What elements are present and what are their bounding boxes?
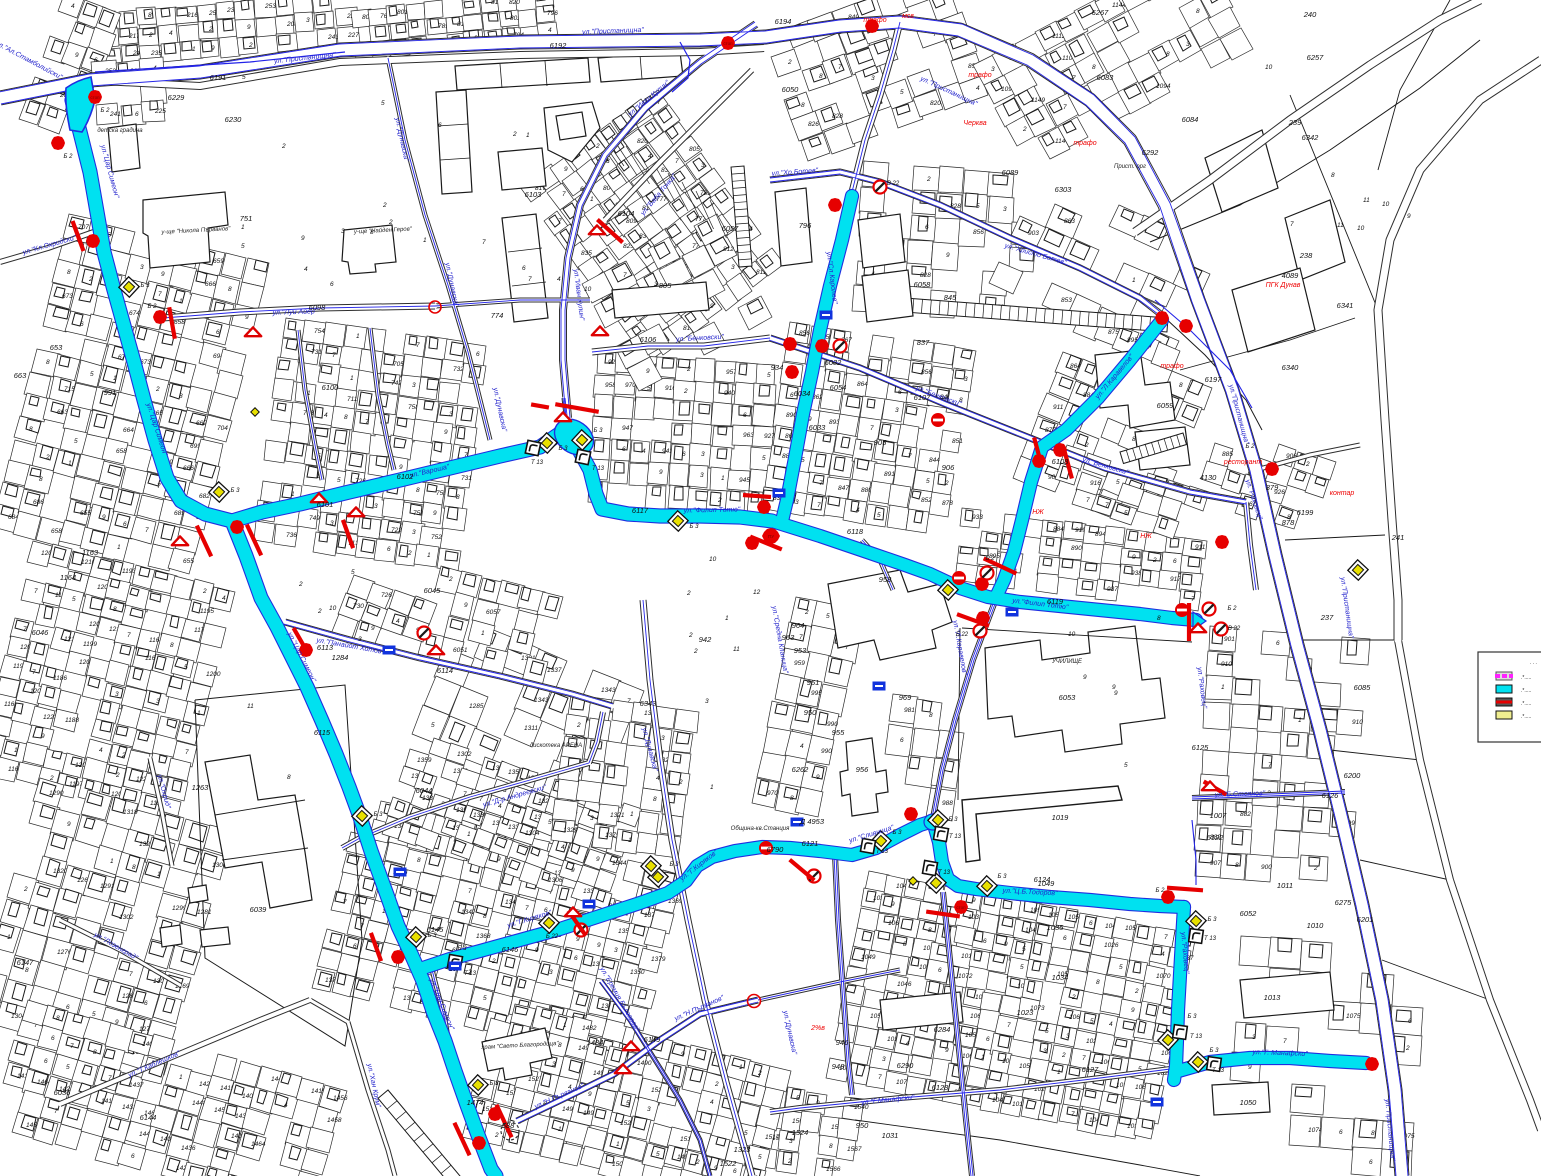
- svg-text:8: 8: [1196, 8, 1200, 15]
- svg-text:6: 6: [938, 967, 942, 974]
- svg-text:1: 1: [1132, 277, 1136, 284]
- svg-text:5: 5: [184, 664, 188, 671]
- svg-text:Б 3: Б 3: [1210, 1048, 1220, 1054]
- svg-text:947: 947: [622, 425, 633, 432]
- svg-text:6100: 6100: [322, 383, 340, 392]
- svg-text:детска градина: детска градина: [97, 128, 143, 134]
- svg-text:2: 2: [1152, 557, 1157, 564]
- svg-text:7: 7: [127, 632, 131, 639]
- svg-text:6149: 6149: [644, 1035, 662, 1044]
- svg-text:879: 879: [1266, 483, 1279, 492]
- svg-text:2: 2: [298, 581, 303, 588]
- svg-text:5: 5: [1090, 1018, 1094, 1025]
- svg-text:Б 22: Б 22: [546, 934, 559, 940]
- svg-text:5: 5: [976, 203, 980, 210]
- svg-text:2: 2: [1022, 126, 1027, 133]
- svg-text:1: 1: [1221, 684, 1225, 691]
- svg-text:4: 4: [99, 747, 103, 754]
- svg-text:1318: 1318: [123, 809, 138, 816]
- svg-text:240: 240: [1303, 10, 1317, 19]
- svg-text:2: 2: [787, 59, 792, 66]
- svg-text:6102: 6102: [397, 472, 415, 481]
- svg-text:9: 9: [1083, 674, 1087, 681]
- svg-text:7: 7: [1283, 1038, 1287, 1045]
- svg-text:10: 10: [709, 556, 717, 563]
- svg-text:11: 11: [733, 646, 740, 653]
- svg-text:8: 8: [801, 102, 805, 109]
- svg-text:9: 9: [433, 510, 437, 517]
- svg-text:6: 6: [986, 1036, 990, 1043]
- svg-text:5: 5: [431, 722, 435, 729]
- svg-text:905: 905: [874, 438, 887, 447]
- svg-text:847: 847: [838, 485, 849, 492]
- svg-text:752: 752: [431, 534, 442, 541]
- svg-text:8: 8: [456, 494, 460, 501]
- svg-text:1379: 1379: [651, 956, 666, 963]
- svg-text:1474: 1474: [467, 1098, 484, 1107]
- svg-text:6267: 6267: [1092, 8, 1110, 17]
- svg-text:9: 9: [371, 625, 375, 632]
- svg-text:7: 7: [1268, 762, 1272, 769]
- svg-text:2: 2: [1313, 865, 1318, 872]
- svg-text:844: 844: [929, 457, 940, 464]
- svg-text:2: 2: [757, 1070, 762, 1077]
- svg-text:1464: 1464: [251, 1141, 266, 1148]
- svg-text:8: 8: [67, 269, 71, 276]
- svg-text:7: 7: [54, 1108, 58, 1115]
- svg-text:820: 820: [509, 0, 520, 6]
- svg-text:1200: 1200: [206, 671, 221, 678]
- svg-text:5: 5: [900, 89, 904, 96]
- svg-text:964: 964: [792, 621, 805, 630]
- svg-text:11: 11: [1337, 222, 1344, 229]
- svg-text:6257: 6257: [1307, 53, 1325, 62]
- svg-text:5: 5: [926, 478, 930, 485]
- svg-text:1199: 1199: [83, 641, 97, 648]
- svg-text:6: 6: [353, 943, 357, 950]
- svg-text:Т 13: Т 13: [949, 834, 962, 840]
- svg-text:754: 754: [314, 328, 325, 335]
- svg-text:6104: 6104: [618, 209, 635, 218]
- svg-text:6: 6: [733, 1168, 737, 1175]
- svg-text:7: 7: [1086, 497, 1090, 504]
- svg-text:5: 5: [762, 455, 766, 462]
- svg-text:878: 878: [942, 500, 953, 507]
- svg-text:5: 5: [1020, 964, 1024, 971]
- svg-text:8: 8: [148, 12, 152, 19]
- svg-text:864: 864: [857, 381, 868, 388]
- svg-text:934: 934: [771, 363, 784, 372]
- svg-text:6108: 6108: [1052, 457, 1070, 466]
- svg-text:ул."Филип Тотю": ул."Филип Тотю": [683, 506, 741, 514]
- svg-text:774: 774: [491, 311, 504, 320]
- svg-text:4: 4: [1109, 1021, 1113, 1028]
- svg-text:Б 2: Б 2: [101, 108, 111, 114]
- svg-text:6058: 6058: [914, 280, 932, 289]
- svg-text:7: 7: [1071, 1111, 1075, 1118]
- svg-text:1: 1: [7, 934, 11, 941]
- svg-text:9: 9: [571, 867, 575, 874]
- svg-text:Б 2: Б 2: [64, 154, 74, 160]
- svg-text:5: 5: [1124, 510, 1128, 517]
- svg-text:Б 3: Б 3: [1188, 1014, 1198, 1020]
- svg-text:707: 707: [78, 224, 89, 231]
- svg-text:655: 655: [80, 510, 91, 517]
- svg-text:1: 1: [1057, 1069, 1061, 1076]
- svg-text:878: 878: [1282, 518, 1295, 527]
- svg-text:5: 5: [1119, 964, 1123, 971]
- svg-text:906: 906: [942, 463, 955, 472]
- svg-text:1007: 1007: [1210, 811, 1228, 820]
- svg-text:9: 9: [75, 52, 79, 59]
- svg-text:856: 856: [921, 369, 932, 376]
- svg-text:6199: 6199: [1297, 508, 1315, 517]
- svg-text:910: 910: [1352, 719, 1363, 726]
- svg-text:2: 2: [944, 480, 949, 487]
- svg-text:6051: 6051: [453, 647, 468, 654]
- svg-text:5: 5: [656, 1151, 660, 1158]
- svg-text:796: 796: [799, 221, 812, 230]
- svg-text:Д 4953: Д 4953: [799, 817, 825, 826]
- svg-text:1484: 1484: [587, 1038, 604, 1047]
- svg-text:9: 9: [597, 942, 601, 949]
- svg-text:682: 682: [199, 493, 210, 500]
- svg-text:8: 8: [483, 913, 487, 920]
- svg-text:1: 1: [467, 831, 471, 838]
- svg-text:9: 9: [972, 897, 976, 904]
- svg-text:9: 9: [1132, 554, 1136, 561]
- svg-text:8: 8: [179, 393, 183, 400]
- svg-text:6052: 6052: [1240, 909, 1258, 918]
- svg-text:10: 10: [329, 605, 337, 612]
- svg-text:3: 3: [789, 1138, 793, 1145]
- svg-text:3: 3: [358, 636, 362, 643]
- svg-text:917: 917: [1170, 576, 1181, 583]
- svg-text:5: 5: [626, 1100, 630, 1107]
- svg-text:1: 1: [725, 615, 729, 622]
- svg-text:7: 7: [343, 899, 347, 906]
- svg-text:1186: 1186: [53, 675, 67, 682]
- svg-text:7: 7: [525, 905, 529, 912]
- svg-text:контар: контар: [1330, 490, 1355, 497]
- svg-text:3: 3: [1003, 206, 1007, 213]
- svg-text:1019: 1019: [1052, 813, 1070, 822]
- svg-text:7: 7: [799, 634, 803, 641]
- svg-text:9: 9: [816, 774, 820, 781]
- svg-text:2: 2: [382, 202, 387, 209]
- svg-text:трафо: трафо: [863, 17, 886, 24]
- svg-text:5: 5: [92, 1011, 96, 1018]
- svg-text:1: 1: [630, 811, 634, 818]
- svg-text:726: 726: [381, 592, 392, 599]
- svg-text:8: 8: [1166, 51, 1170, 58]
- svg-text:ПГК Дунав: ПГК Дунав: [1266, 282, 1301, 289]
- svg-text:3: 3: [871, 75, 875, 82]
- svg-text:1458: 1458: [327, 1117, 342, 1124]
- svg-text:1263: 1263: [192, 783, 210, 792]
- svg-text:2: 2: [88, 276, 93, 283]
- svg-text:3: 3: [614, 947, 618, 954]
- svg-text:856: 856: [799, 330, 810, 337]
- svg-text:3: 3: [647, 1106, 651, 1113]
- svg-text:1306: 1306: [548, 877, 563, 884]
- svg-text:1321: 1321: [610, 812, 625, 819]
- svg-text:3: 3: [306, 17, 310, 24]
- svg-text:805: 805: [689, 146, 700, 153]
- svg-text:1: 1: [179, 298, 183, 305]
- svg-text:.*.....: .*.....: [1521, 701, 1531, 707]
- svg-text:4: 4: [1161, 951, 1165, 958]
- svg-text:2: 2: [23, 886, 28, 893]
- svg-text:6: 6: [44, 1058, 48, 1065]
- svg-text:9: 9: [161, 271, 165, 278]
- svg-text:903: 903: [1028, 230, 1039, 237]
- svg-text:9: 9: [67, 821, 71, 828]
- svg-text:НЖ: НЖ: [1032, 509, 1044, 516]
- svg-text:3: 3: [1043, 1048, 1047, 1055]
- svg-text:2: 2: [115, 772, 120, 779]
- svg-text:659: 659: [213, 258, 224, 265]
- svg-text:948: 948: [832, 1062, 845, 1071]
- svg-text:953: 953: [794, 646, 807, 655]
- svg-text:6343: 6343: [640, 699, 658, 708]
- svg-text:9: 9: [1131, 1007, 1135, 1014]
- svg-text:6050: 6050: [782, 85, 800, 94]
- svg-text:3: 3: [449, 411, 453, 418]
- svg-text:1343: 1343: [601, 687, 616, 694]
- svg-text:8: 8: [653, 796, 657, 803]
- svg-text:трафо: трафо: [1073, 140, 1096, 147]
- svg-text:1: 1: [628, 837, 632, 844]
- svg-text:2: 2: [695, 1159, 700, 1166]
- svg-text:Т 13: Т 13: [1204, 936, 1217, 942]
- svg-text:9: 9: [464, 602, 468, 609]
- svg-text:Б 3: Б 3: [490, 1081, 500, 1087]
- svg-text:4: 4: [906, 1040, 910, 1047]
- svg-text:3: 3: [1252, 1034, 1256, 1041]
- svg-text:Б 2: Б 2: [1228, 606, 1238, 612]
- svg-text:1: 1: [157, 871, 161, 878]
- svg-text:Б 3: Б 3: [949, 817, 959, 823]
- svg-text:7: 7: [1191, 596, 1195, 603]
- svg-text:4089: 4089: [1282, 271, 1300, 280]
- svg-text:1284: 1284: [332, 653, 349, 662]
- svg-text:9: 9: [946, 252, 950, 259]
- svg-text:6127: 6127: [1082, 1065, 1100, 1074]
- svg-text:Б 2: Б 2: [1156, 888, 1166, 894]
- svg-text:1: 1: [721, 475, 725, 482]
- svg-text:Б 3: Б 3: [428, 933, 438, 939]
- svg-text:6113: 6113: [317, 643, 334, 652]
- svg-text:990: 990: [821, 748, 832, 755]
- svg-text:6: 6: [123, 521, 127, 528]
- svg-text:235: 235: [150, 50, 162, 57]
- svg-text:3: 3: [549, 969, 553, 976]
- svg-text:853: 853: [1061, 297, 1072, 304]
- svg-text:851: 851: [952, 438, 963, 445]
- svg-text:8: 8: [46, 359, 50, 366]
- svg-text:5: 5: [381, 100, 385, 107]
- svg-text:1049: 1049: [861, 954, 876, 961]
- svg-text:7: 7: [838, 64, 842, 71]
- svg-text:6201: 6201: [1357, 915, 1374, 924]
- svg-text:2: 2: [686, 590, 691, 597]
- svg-text:7: 7: [1082, 1055, 1086, 1062]
- svg-text:1: 1: [197, 710, 201, 717]
- svg-text:6106: 6106: [640, 335, 658, 344]
- svg-text:6262: 6262: [792, 765, 810, 774]
- svg-text:7: 7: [819, 480, 823, 487]
- svg-text:1: 1: [241, 224, 245, 231]
- svg-text:Прист. орг: Прист. орг: [1114, 164, 1146, 170]
- svg-text:6101: 6101: [317, 500, 334, 509]
- svg-text:10: 10: [1068, 631, 1076, 638]
- svg-text:1: 1: [291, 491, 295, 498]
- svg-text:6146: 6146: [502, 945, 520, 954]
- svg-text:6303: 6303: [1055, 185, 1073, 194]
- svg-text:10: 10: [1265, 64, 1273, 71]
- svg-text:3: 3: [341, 228, 345, 235]
- svg-text:2: 2: [678, 779, 683, 786]
- svg-text:6: 6: [682, 451, 686, 458]
- svg-text:9: 9: [596, 856, 600, 863]
- svg-text:5: 5: [1124, 762, 1128, 769]
- svg-text:653: 653: [50, 343, 63, 352]
- svg-text:3: 3: [882, 1056, 886, 1063]
- svg-text:9: 9: [588, 1091, 592, 1098]
- svg-text:7: 7: [558, 218, 562, 225]
- svg-text:6098: 6098: [309, 303, 327, 312]
- svg-text:6033: 6033: [809, 423, 827, 432]
- svg-text:711: 711: [347, 396, 358, 403]
- svg-text:6: 6: [983, 938, 987, 945]
- svg-text:6057: 6057: [722, 224, 740, 233]
- svg-text:3: 3: [795, 499, 799, 506]
- svg-text:7: 7: [482, 239, 486, 246]
- svg-text:3: 3: [412, 529, 416, 536]
- svg-text:3: 3: [701, 162, 705, 169]
- svg-text:970: 970: [767, 790, 778, 797]
- svg-text:6790: 6790: [767, 845, 785, 854]
- svg-text:2: 2: [714, 1081, 719, 1088]
- svg-text:6128: 6128: [932, 1083, 950, 1092]
- svg-text:Т 13: Т 13: [464, 971, 477, 977]
- svg-text:5: 5: [72, 596, 76, 603]
- svg-text:9: 9: [564, 166, 568, 173]
- svg-text:6: 6: [1173, 558, 1177, 565]
- svg-text:8: 8: [1092, 64, 1096, 71]
- svg-text:7: 7: [675, 158, 679, 165]
- svg-text:6084: 6084: [1182, 115, 1199, 124]
- svg-text:12: 12: [753, 589, 761, 596]
- svg-text:9: 9: [301, 235, 305, 242]
- svg-text:1281: 1281: [197, 909, 212, 916]
- svg-text:731: 731: [461, 475, 472, 482]
- svg-text:5: 5: [1022, 946, 1026, 953]
- svg-text:955: 955: [832, 728, 845, 737]
- svg-text:7: 7: [365, 419, 369, 426]
- svg-text:951: 951: [807, 678, 820, 687]
- svg-text:901: 901: [1224, 636, 1235, 643]
- svg-text:7: 7: [528, 276, 532, 283]
- svg-text:1031: 1031: [882, 1131, 899, 1140]
- svg-text:1329: 1329: [563, 827, 578, 834]
- svg-text:910: 910: [1221, 661, 1232, 668]
- svg-text:241: 241: [1391, 533, 1405, 542]
- svg-text:Б 3: Б 3: [998, 874, 1008, 880]
- svg-text:6: 6: [522, 265, 526, 272]
- svg-text:1285: 1285: [469, 703, 484, 710]
- svg-text:9: 9: [710, 303, 714, 310]
- svg-text:НЖ: НЖ: [1140, 533, 1152, 540]
- svg-text:9: 9: [497, 856, 501, 863]
- svg-text:4: 4: [324, 412, 328, 419]
- svg-text:2: 2: [1405, 1045, 1410, 1052]
- svg-text:7: 7: [878, 1074, 882, 1081]
- svg-text:916: 916: [1090, 480, 1101, 487]
- svg-text:907: 907: [1210, 860, 1221, 867]
- svg-text:8: 8: [928, 927, 932, 934]
- svg-text:3: 3: [552, 1061, 556, 1068]
- svg-text:796: 796: [547, 10, 558, 17]
- svg-text:2: 2: [407, 550, 412, 557]
- svg-text:6044: 6044: [416, 786, 433, 795]
- svg-text:6197: 6197: [1205, 375, 1223, 384]
- svg-text:9: 9: [247, 24, 251, 31]
- svg-text:3: 3: [140, 264, 144, 271]
- svg-text:9: 9: [681, 1051, 685, 1058]
- svg-text:дискотека АРЕНА: дискотека АРЕНА: [530, 743, 582, 749]
- svg-text:Б 3: Б 3: [374, 812, 384, 818]
- svg-text:8: 8: [790, 795, 794, 802]
- svg-text:1023: 1023: [1017, 1008, 1035, 1017]
- svg-text:2: 2: [121, 752, 126, 759]
- svg-text:8: 8: [1096, 979, 1100, 986]
- svg-text:663: 663: [14, 371, 27, 380]
- svg-text:9: 9: [1114, 690, 1118, 697]
- svg-text:225: 225: [154, 108, 166, 115]
- svg-text:1: 1: [981, 1054, 985, 1061]
- svg-text:1: 1: [590, 196, 594, 203]
- svg-text:ресторант: ресторант: [1223, 459, 1262, 466]
- svg-text:9: 9: [945, 1047, 949, 1054]
- svg-text:6: 6: [574, 955, 578, 962]
- svg-text:835: 835: [581, 250, 592, 257]
- svg-text:6083: 6083: [1097, 73, 1115, 82]
- svg-text:933: 933: [972, 514, 983, 521]
- svg-text:Б 3: Б 3: [594, 428, 604, 434]
- svg-text:1359: 1359: [417, 757, 432, 764]
- svg-text:Т 13: Т 13: [592, 466, 605, 472]
- svg-text:6275: 6275: [1335, 898, 1353, 907]
- svg-text:6: 6: [1089, 920, 1093, 927]
- svg-text:4: 4: [548, 27, 552, 34]
- svg-text:6032: 6032: [825, 358, 843, 367]
- svg-text:1437: 1437: [129, 1082, 144, 1089]
- svg-text:8: 8: [25, 967, 29, 974]
- svg-text:1164: 1164: [60, 573, 76, 582]
- svg-text:1: 1: [350, 375, 354, 382]
- svg-text:1034: 1034: [1052, 973, 1069, 982]
- svg-text:5: 5: [242, 74, 246, 81]
- svg-text:8: 8: [93, 1049, 97, 1056]
- svg-text:7: 7: [157, 483, 161, 490]
- svg-text:3: 3: [156, 698, 160, 705]
- svg-text:1: 1: [356, 333, 360, 340]
- svg-text:1049: 1049: [1038, 879, 1056, 888]
- svg-text:3: 3: [1186, 41, 1190, 48]
- svg-text:9: 9: [646, 368, 650, 375]
